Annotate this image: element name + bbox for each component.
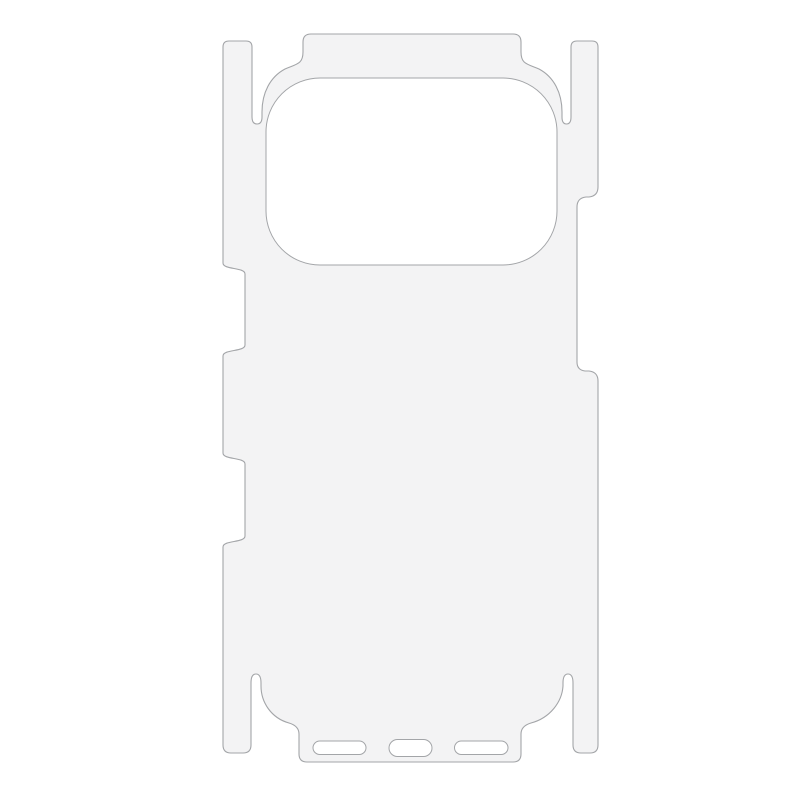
product-image-canvas xyxy=(0,0,800,800)
charging-port-slot xyxy=(389,740,432,757)
speaker-slot-right xyxy=(455,741,509,755)
phone-film-die-cut-svg xyxy=(0,0,800,800)
speaker-slot-left xyxy=(313,741,366,755)
product-photo xyxy=(0,0,800,800)
camera-cutout xyxy=(266,78,557,265)
